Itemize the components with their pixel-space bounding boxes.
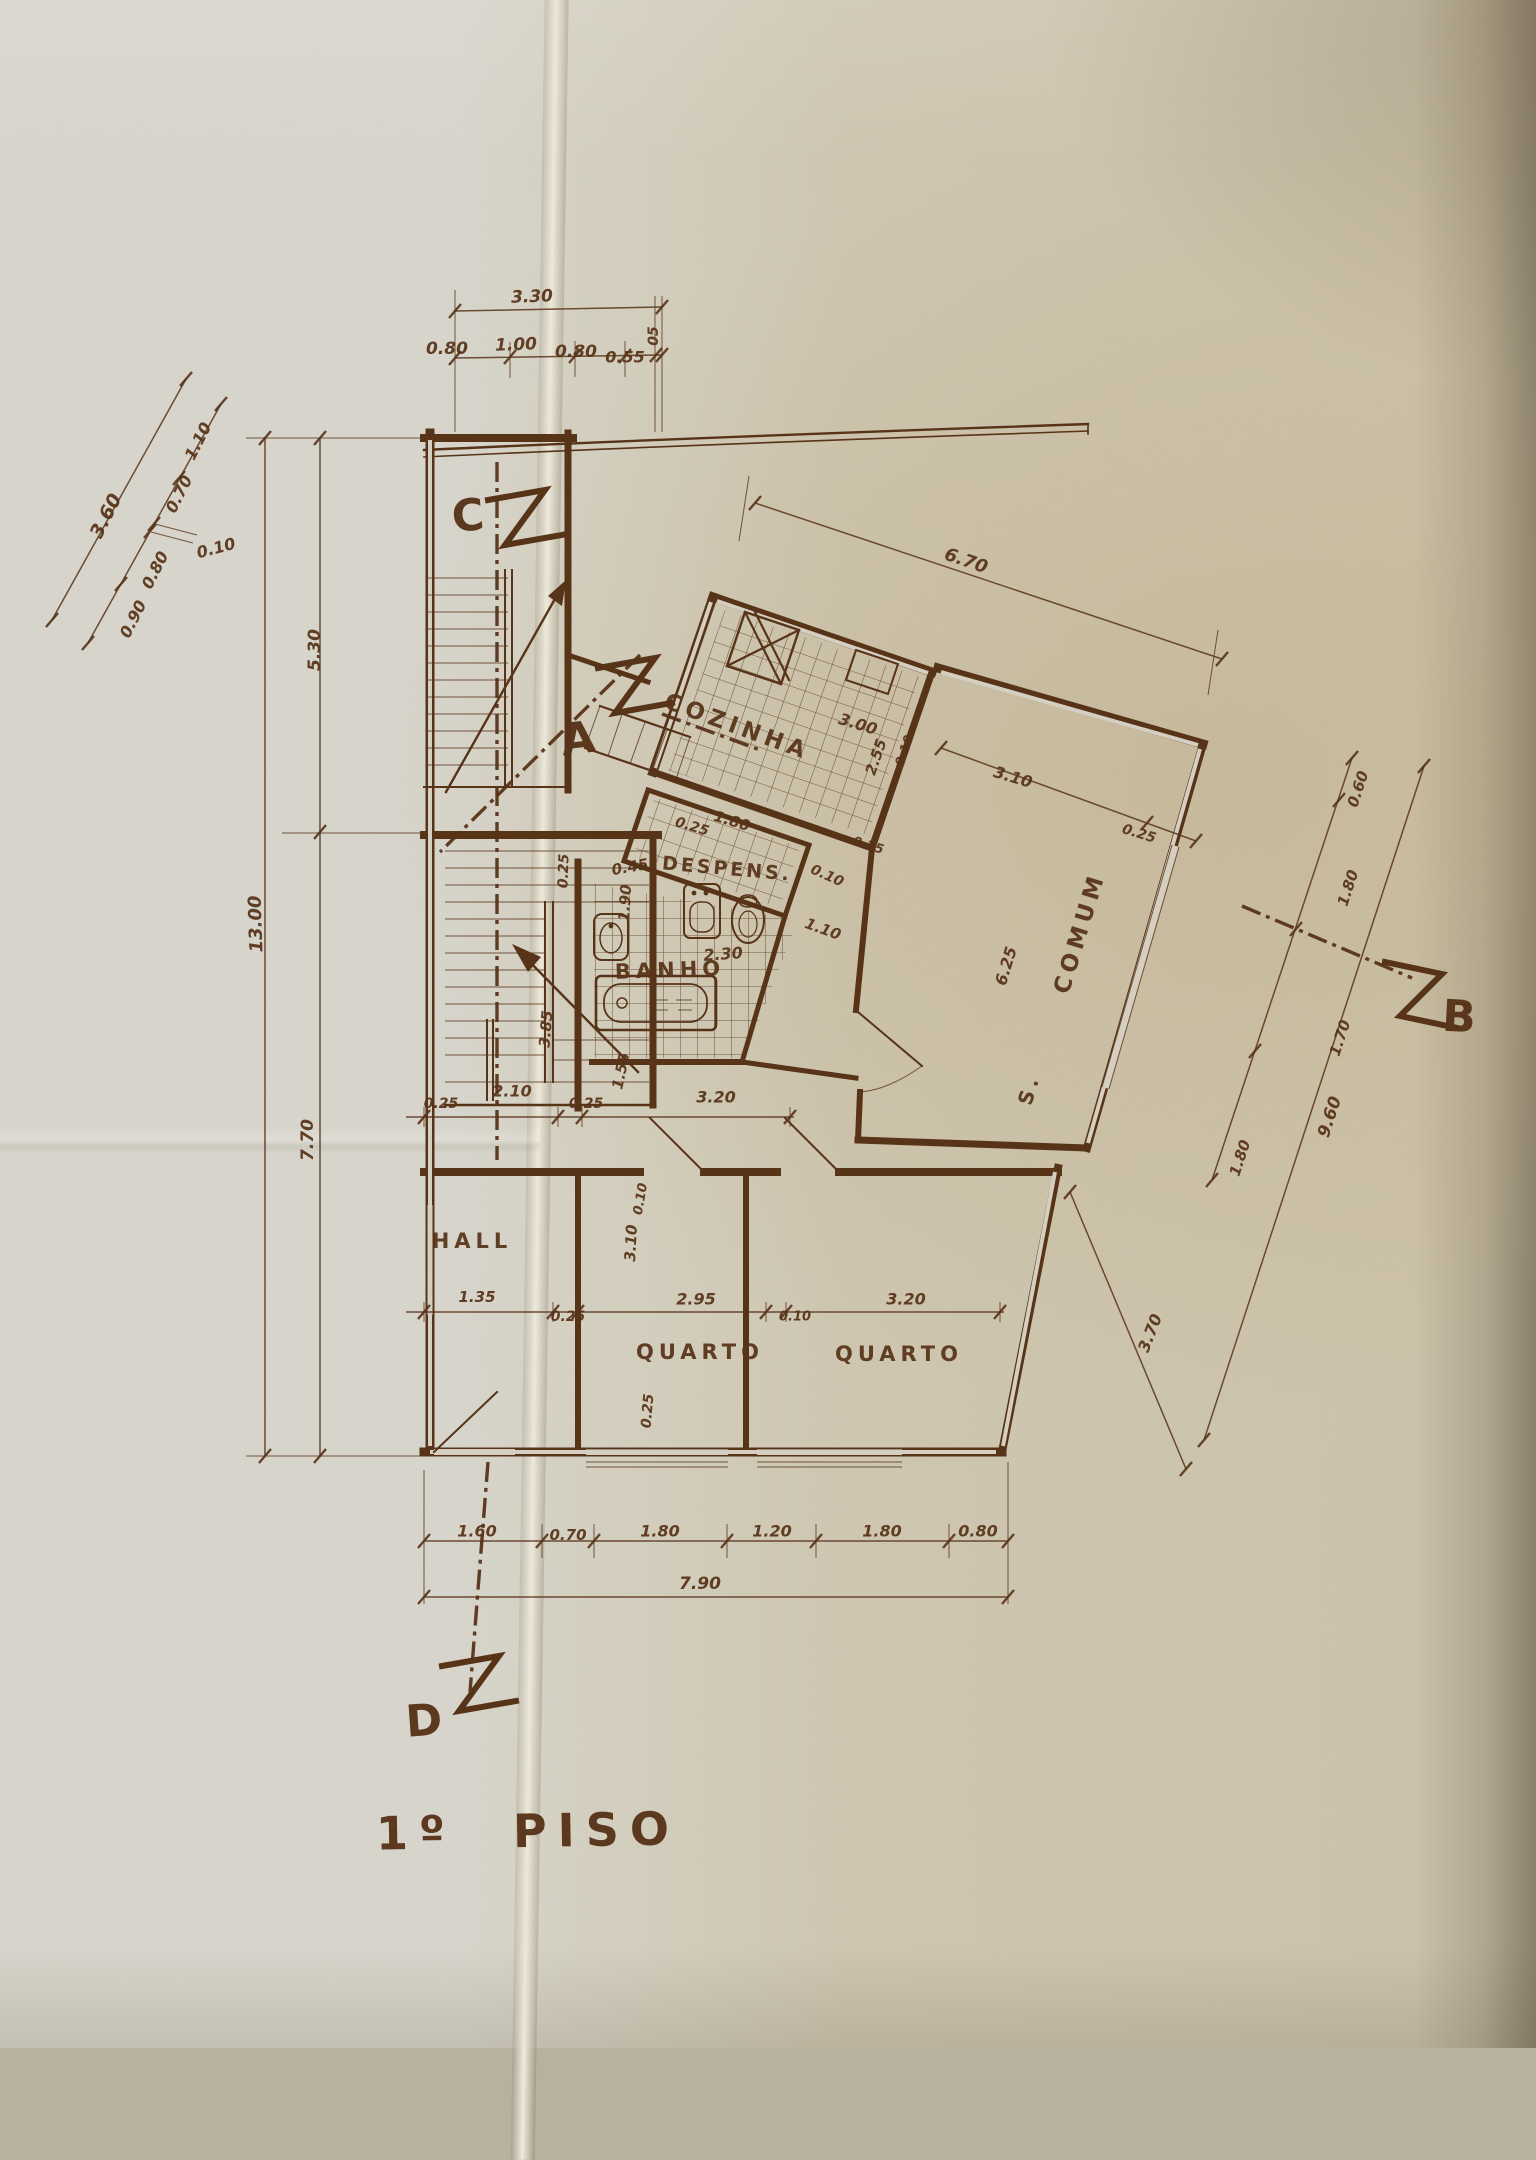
dim-label: 0.25 [639,1393,658,1429]
dim-label: 1.00 [495,334,538,355]
room-label-hall: HALL [432,1229,513,1253]
dim-label: 0.25 [551,1309,586,1325]
dim-label: 3.20 [886,1290,925,1309]
room-label-quarto1: QUARTO [636,1340,764,1364]
dim-label: 3.30 [511,286,554,307]
section-marker-c: C [450,489,487,543]
dim-label: 13.00 [245,895,268,953]
dim-label: 0.80 [958,1522,997,1541]
dim-label: 0.25 [569,1096,604,1112]
dim-label: 0.80 [555,342,597,362]
dim-label: 5.30 [305,629,325,671]
dim-label: 2.10 [492,1082,531,1101]
dim-label: 0.25 [555,853,572,888]
dim-label: 1.80 [640,1522,679,1541]
dim-label: 2.95 [676,1290,715,1309]
dim-label: 1.60 [457,1522,496,1541]
floor-plan-drawing [0,0,1536,2048]
section-marker-a: A [558,712,598,767]
dim-label: 1.80 [862,1522,901,1541]
dim-label: 0.70 [549,1526,586,1544]
dim-label: 0.80 [426,339,468,359]
section-marker-b: B [1441,991,1477,1044]
dim-label: 3.85 [535,1010,556,1048]
dim-label: 7.70 [298,1119,318,1161]
dim-label: 05 [646,326,662,345]
room-label-banho: BANHO [614,956,725,984]
dim-label: 0.25 [424,1096,459,1112]
dim-label: 3.20 [696,1088,735,1107]
dim-label: 1.20 [752,1522,791,1541]
page-title: 1º PISO [376,1801,681,1860]
dim-label: 3.10 [621,1224,641,1262]
paper-grain-texture [0,0,1536,2048]
photographed-floor-plan: { "colors": { "ink": "#573318", "paper":… [0,0,1536,2048]
dim-label: 7.90 [679,1574,721,1594]
dim-label: 0.55 [605,348,644,367]
dim-label: 1.90 [615,884,636,922]
room-label-quarto2: QUARTO [835,1342,963,1366]
section-marker-d: D [404,1694,444,1747]
dim-label: 0.10 [779,1310,811,1325]
dim-label: 1.35 [458,1288,495,1306]
